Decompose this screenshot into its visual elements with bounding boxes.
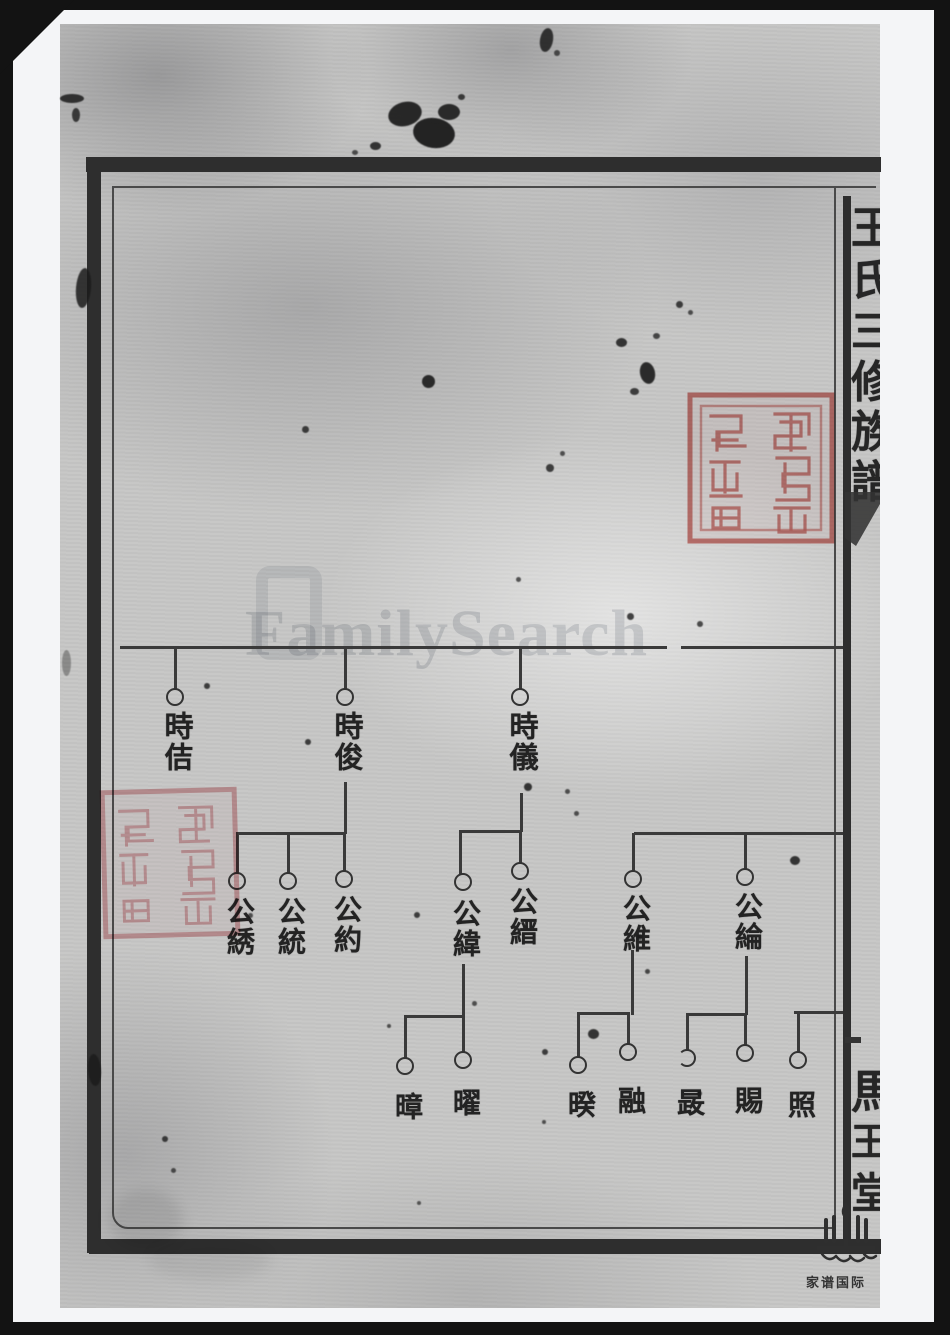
tree-line xyxy=(462,1016,465,1053)
page-frame-inner xyxy=(112,186,836,1229)
ink-speck xyxy=(542,1120,546,1124)
ink-speck xyxy=(60,94,84,103)
ink-speck xyxy=(171,1168,176,1173)
person-circle xyxy=(736,868,754,886)
tree-line xyxy=(519,831,522,863)
person-circle xyxy=(789,1051,807,1069)
ink-speck xyxy=(458,94,465,100)
person-circle xyxy=(736,1044,754,1062)
person-circle xyxy=(678,1049,696,1067)
tree-line xyxy=(686,1014,689,1050)
ink-speck xyxy=(565,789,570,794)
ink-speck xyxy=(62,650,71,676)
tree-line xyxy=(459,831,462,874)
ink-speck xyxy=(352,150,358,155)
paper-smudge xyxy=(108,1190,183,1250)
tree-line xyxy=(627,1013,630,1045)
ink-speck xyxy=(616,338,627,347)
tree-line xyxy=(462,964,465,1017)
person-name: 賜 xyxy=(728,1086,762,1116)
ink-speck xyxy=(645,969,650,974)
person-circle xyxy=(279,872,297,890)
tree-line xyxy=(174,649,177,689)
person-circle xyxy=(335,870,353,888)
tree-line xyxy=(120,646,667,649)
ink-speck xyxy=(438,104,460,120)
page-frame-top xyxy=(86,157,881,172)
person-circle xyxy=(619,1043,637,1061)
person-name: 融 xyxy=(611,1086,645,1116)
ink-speck xyxy=(554,50,560,56)
ink-speck xyxy=(417,1201,421,1205)
person-circle xyxy=(569,1056,587,1074)
person-name: 曜 xyxy=(446,1088,480,1118)
person-circle xyxy=(454,1051,472,1069)
tree-line xyxy=(404,1016,407,1058)
tree-line xyxy=(520,793,523,832)
tree-line xyxy=(459,830,522,833)
ink-speck xyxy=(516,577,521,582)
ink-speck xyxy=(688,310,693,315)
ink-speck xyxy=(637,934,643,940)
ink-speck xyxy=(524,783,532,791)
ink-speck xyxy=(627,613,634,620)
ink-speck xyxy=(697,1091,702,1096)
ink-speck xyxy=(72,108,80,122)
person-circle xyxy=(511,862,529,880)
ink-speck xyxy=(653,333,660,339)
tree-line xyxy=(344,649,347,689)
ink-speck xyxy=(790,856,800,865)
ink-speck xyxy=(162,1136,168,1142)
ink-speck xyxy=(542,1049,548,1055)
tree-line xyxy=(632,833,635,871)
tree-line xyxy=(519,649,522,689)
tree-line xyxy=(287,833,290,873)
person-name: 時儀 xyxy=(503,711,537,773)
person-circle xyxy=(336,688,354,706)
tree-line xyxy=(577,1013,580,1057)
person-name: 公約 xyxy=(327,895,361,955)
person-name: 時佶 xyxy=(158,711,192,773)
ink-speck xyxy=(302,426,309,433)
ink-speck xyxy=(472,1001,477,1006)
person-name: 暌 xyxy=(561,1090,595,1120)
person-name: 時俊 xyxy=(328,711,362,773)
person-name: 照 xyxy=(781,1090,815,1120)
tree-line xyxy=(794,1011,843,1014)
ink-speck xyxy=(204,683,210,689)
ink-speck xyxy=(387,1024,391,1028)
person-circle xyxy=(511,688,529,706)
tree-line xyxy=(797,1012,800,1053)
ink-speck xyxy=(305,739,311,745)
ink-speck xyxy=(697,621,703,627)
ink-speck xyxy=(588,1029,599,1039)
library-seal-stamp xyxy=(99,786,241,940)
person-name: 公維 xyxy=(616,894,650,954)
ink-speck xyxy=(574,811,579,816)
tree-line xyxy=(404,1015,465,1018)
person-name: 公綸 xyxy=(728,892,762,952)
library-seal-stamp xyxy=(687,392,835,544)
ink-speck xyxy=(546,464,554,472)
tree-line xyxy=(577,1012,630,1015)
fishtail-icon xyxy=(845,492,880,548)
book-spine-column: 王 氏 三 修 族 譜 馬 王 堂 xyxy=(843,180,880,1308)
spine-tick xyxy=(845,1037,861,1043)
spine-divider-line xyxy=(843,196,851,1250)
person-name: 公統 xyxy=(271,897,305,957)
photographed-genealogy-page: FamilySearch 王 氏 三 修 族 譜 馬 王 堂 xyxy=(0,0,950,1335)
ink-speck xyxy=(370,142,381,150)
tree-line xyxy=(343,833,346,871)
ink-speck xyxy=(630,388,639,395)
person-circle xyxy=(624,870,642,888)
person-name: 暲 xyxy=(388,1092,422,1122)
person-circle xyxy=(396,1057,414,1075)
ink-speck xyxy=(414,912,420,918)
ink-speck xyxy=(676,301,683,308)
person-circle xyxy=(166,688,184,706)
tree-line xyxy=(236,832,346,835)
paper-smudge xyxy=(150,1240,270,1280)
publisher-tree-logo-icon xyxy=(812,1196,880,1270)
tree-line xyxy=(686,1013,747,1016)
tree-line xyxy=(744,1014,747,1046)
tree-line xyxy=(744,833,747,869)
publisher-footer: 家谱国际 xyxy=(806,1272,890,1291)
tree-line xyxy=(631,950,634,1015)
ink-speck xyxy=(560,451,565,456)
person-name: 公縉 xyxy=(503,887,537,947)
person-name: 公緯 xyxy=(446,899,480,959)
tree-line xyxy=(745,956,748,1015)
spine-hall-char: 王 xyxy=(851,1111,880,1166)
person-circle xyxy=(454,873,472,891)
tree-line xyxy=(634,832,843,835)
page-frame-left xyxy=(87,157,101,1253)
ink-speck xyxy=(422,375,435,388)
tree-line xyxy=(344,782,347,834)
tree-line xyxy=(681,646,843,649)
ink-speck xyxy=(248,913,253,918)
